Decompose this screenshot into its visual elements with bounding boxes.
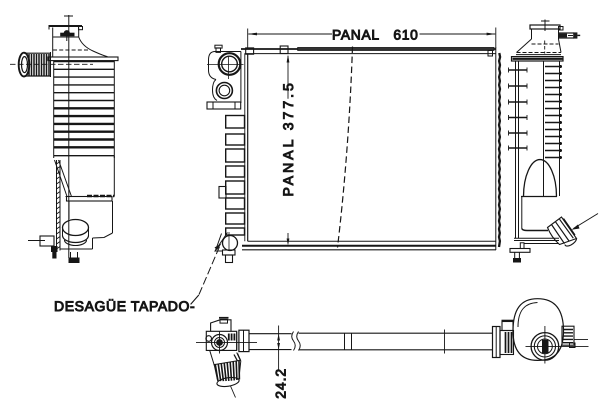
svg-text:24.2: 24.2 bbox=[273, 368, 289, 399]
svg-text:PANAL 377.5: PANAL 377.5 bbox=[280, 80, 296, 196]
svg-text:PANAL 610: PANAL 610 bbox=[332, 28, 418, 43]
svg-text:DESAGÜE TAPADO-: DESAGÜE TAPADO- bbox=[54, 298, 195, 314]
